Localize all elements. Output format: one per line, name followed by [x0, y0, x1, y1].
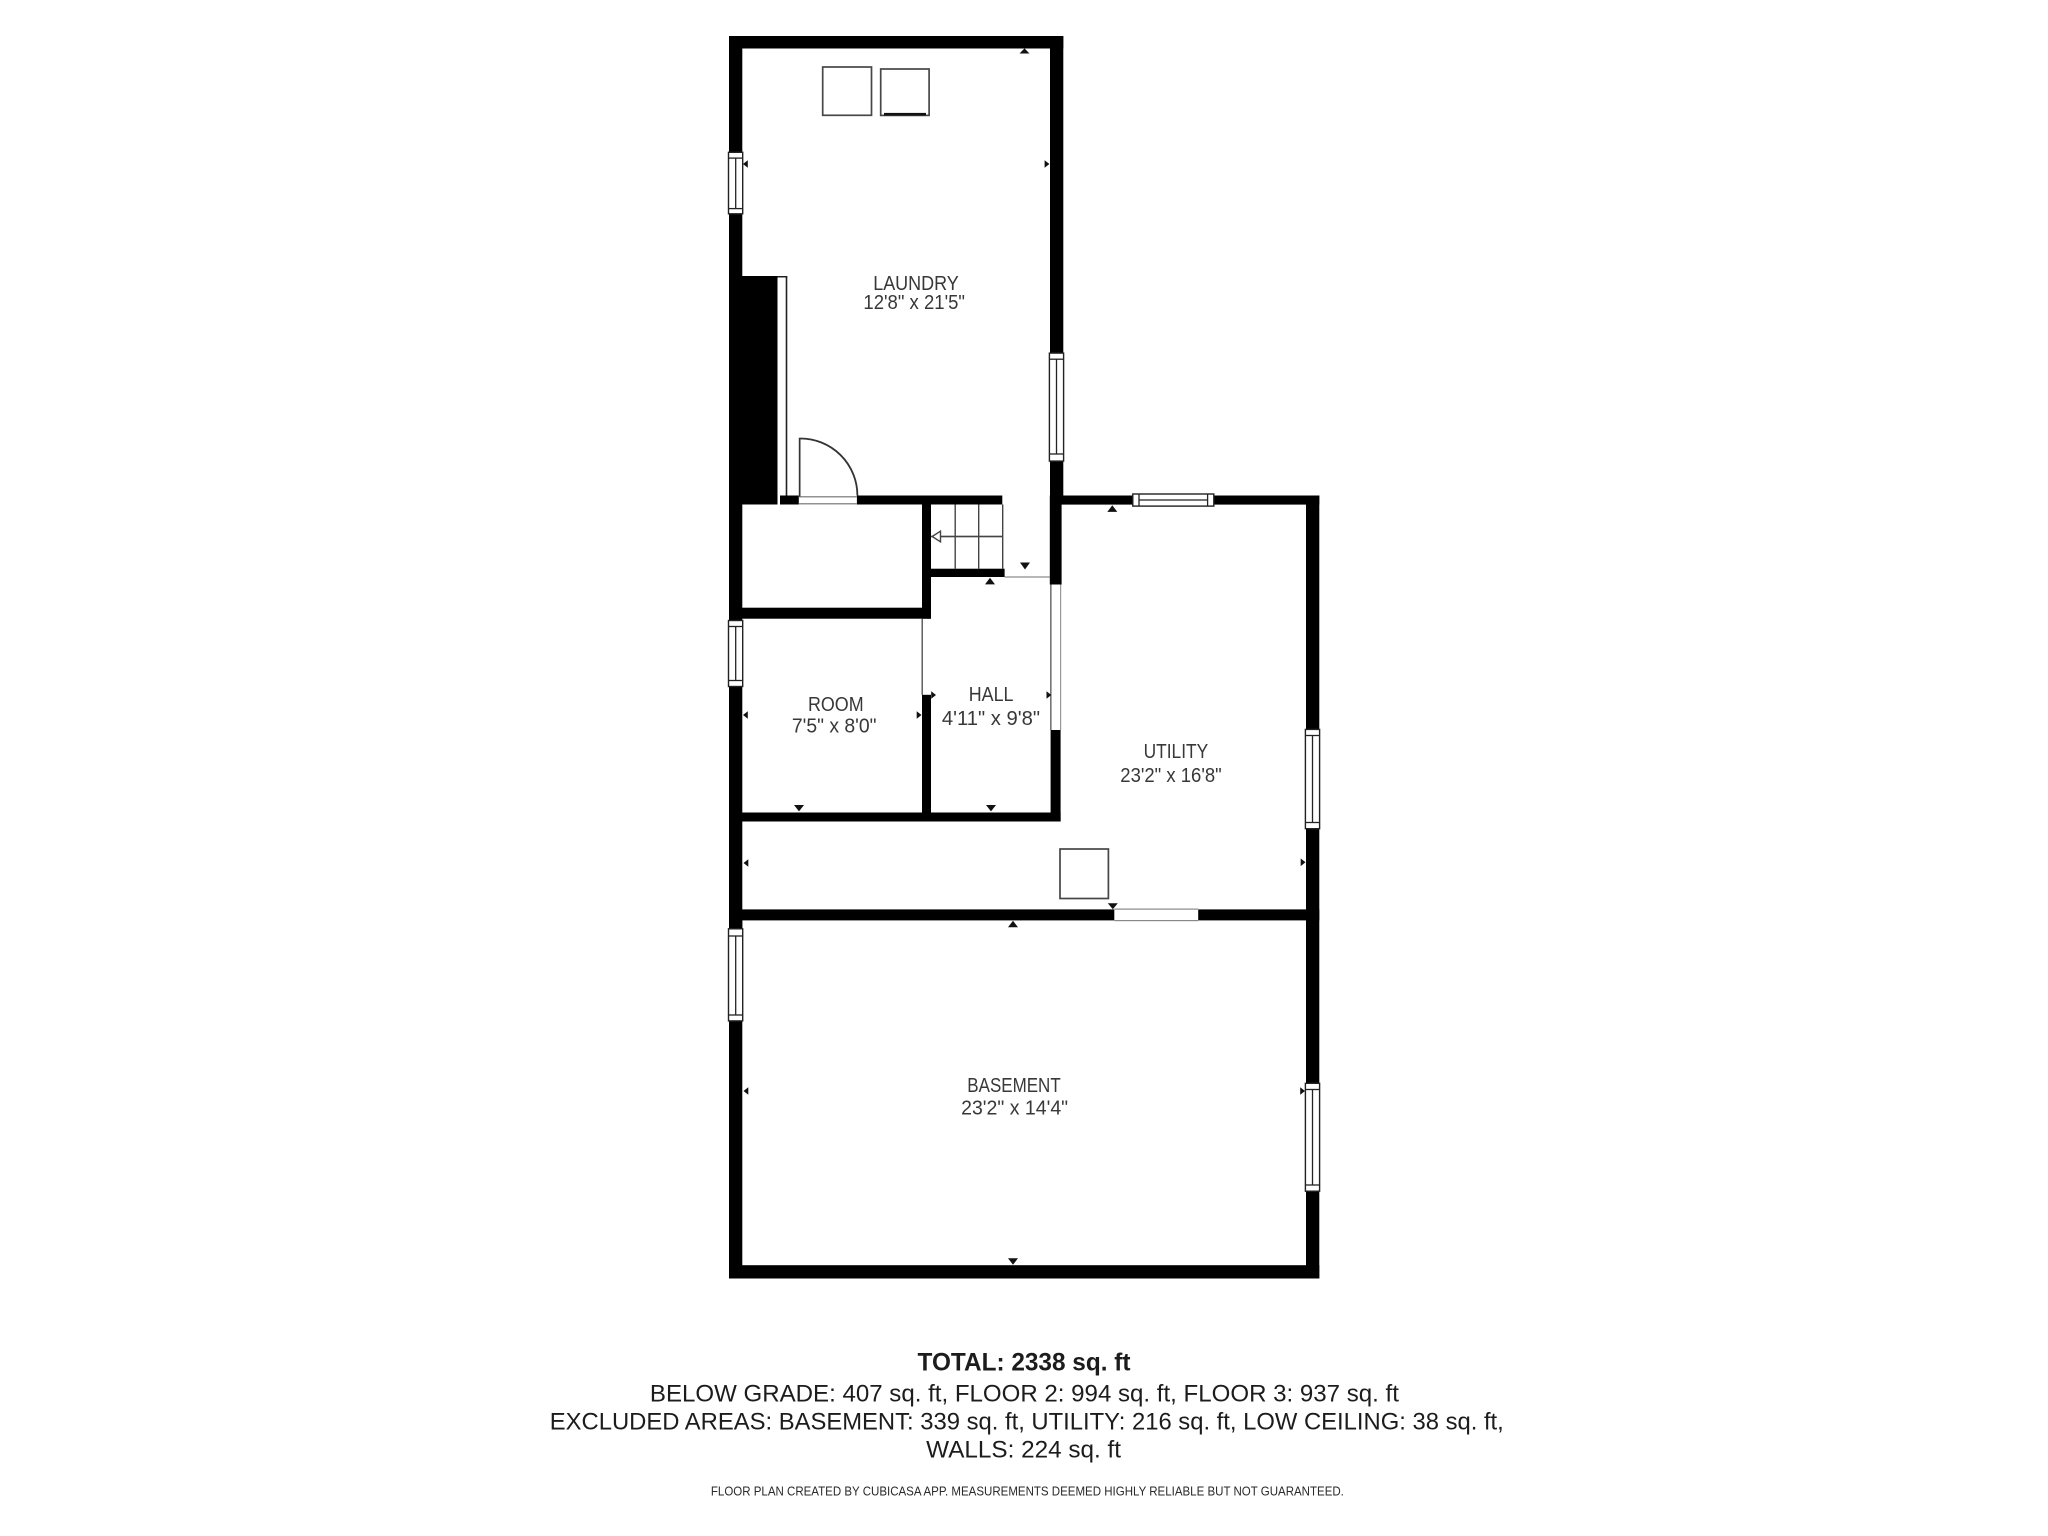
svg-text:ROOM: ROOM — [808, 694, 864, 716]
svg-text:WALLS: 224 sq. ft: WALLS: 224 sq. ft — [926, 1437, 1121, 1464]
svg-text:23'2" x 14'4": 23'2" x 14'4" — [961, 1098, 1068, 1120]
svg-text:4'11" x 9'8": 4'11" x 9'8" — [942, 708, 1040, 730]
svg-text:HALL: HALL — [969, 684, 1014, 706]
svg-text:23'2" x 16'8": 23'2" x 16'8" — [1120, 765, 1221, 787]
svg-text:TOTAL: 2338 sq. ft: TOTAL: 2338 sq. ft — [918, 1350, 1131, 1377]
svg-text:12'8" x 21'5": 12'8" x 21'5" — [863, 292, 965, 314]
svg-text:UTILITY: UTILITY — [1144, 741, 1209, 763]
svg-text:FLOOR PLAN CREATED BY CUBICASA: FLOOR PLAN CREATED BY CUBICASA APP. MEAS… — [711, 1485, 1344, 1499]
svg-text:EXCLUDED AREAS: BASEMENT: 339: EXCLUDED AREAS: BASEMENT: 339 sq. ft, UT… — [550, 1409, 1504, 1436]
svg-text:BASEMENT: BASEMENT — [967, 1075, 1060, 1097]
svg-text:BELOW GRADE: 407 sq. ft, FLOOR: BELOW GRADE: 407 sq. ft, FLOOR 2: 994 sq… — [650, 1381, 1399, 1408]
svg-text:7'5" x 8'0": 7'5" x 8'0" — [792, 715, 877, 737]
